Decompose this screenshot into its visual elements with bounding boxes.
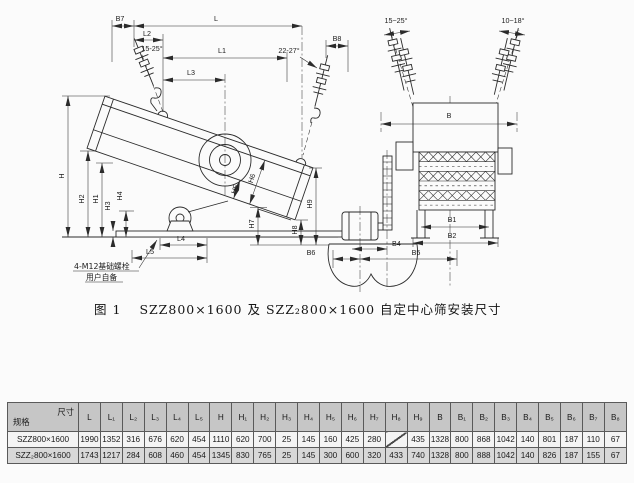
figure-caption: 图 1SZZ800×1600 及 SZZ₂800×1600 自定中心筛安装尺寸 [94, 299, 502, 318]
column-header: B₈ [604, 403, 626, 432]
spec-value: 620 [232, 432, 254, 448]
spec-value: 801 [539, 432, 561, 448]
foundation-note-line2: 用户自备 [86, 272, 117, 282]
spec-value: 700 [254, 432, 276, 448]
column-header: B₇ [582, 403, 604, 432]
spec-value: 454 [188, 448, 210, 464]
figure-caption-text: SZZ800×1600 及 SZZ₂800×1600 自定中心筛安装尺寸 [139, 302, 501, 317]
column-header: H₈ [385, 403, 407, 432]
spec-value: 1352 [100, 432, 122, 448]
column-header: B₄ [517, 403, 539, 432]
angle-label-discharge: 22-27° [278, 46, 299, 55]
motor-base [328, 244, 417, 286]
spec-value: 800 [451, 432, 473, 448]
spec-value: 1743 [79, 448, 101, 464]
spec-value: 765 [254, 448, 276, 464]
spec-value: 620 [166, 432, 188, 448]
angle-label-front-right: 10~18° [501, 16, 524, 25]
page: B7 L L2 15-25° L1 22-27° L3 B8 H H2 H1 H… [0, 0, 634, 483]
dim-label-H8: H8 [290, 225, 299, 234]
spec-value: 676 [144, 432, 166, 448]
dimension-table: 尺寸 规格 LL₁L₂L₃L₄L₅HH₁H₂H₃H₄H₅H₆H₇H₈H₉BB₁B… [7, 402, 627, 464]
spec-value [385, 432, 407, 448]
spec-value: 140 [517, 448, 539, 464]
dim-label-B: B [447, 111, 452, 120]
spec-row: SZZ800×160019901352316676620454111062070… [8, 432, 627, 448]
corner-label-dimension: 尺寸 [57, 406, 74, 418]
spec-value: 300 [319, 448, 341, 464]
spec-value: 280 [363, 432, 385, 448]
dim-label-L5: L5 [146, 247, 154, 256]
spec-value: 454 [188, 432, 210, 448]
dim-label-L2: L2 [143, 29, 151, 38]
spec-value: 826 [539, 448, 561, 464]
figure-number: 图 1 [94, 302, 121, 317]
spec-value: 67 [604, 432, 626, 448]
column-header: B₃ [495, 403, 517, 432]
dim-label-H2: H2 [77, 194, 86, 203]
column-header: L₃ [144, 403, 166, 432]
spec-value: 320 [363, 448, 385, 464]
row-model-label: SZZ800×1600 [8, 432, 79, 448]
table-body: SZZ800×160019901352316676620454111062070… [8, 432, 627, 464]
spec-value: 67 [604, 448, 626, 464]
spec-value: 1110 [210, 432, 232, 448]
spec-value: 1042 [495, 432, 517, 448]
dim-label-B2: B2 [448, 231, 457, 240]
angle-label-feed: 15-25° [141, 44, 162, 53]
dim-label-L3: L3 [187, 68, 195, 77]
dim-label-H9: H9 [305, 199, 314, 208]
spec-value: 140 [517, 432, 539, 448]
column-header: H₅ [319, 403, 341, 432]
screen-mesh [419, 152, 495, 210]
spec-value: 145 [298, 432, 320, 448]
dim-label-L4: L4 [177, 234, 185, 243]
spec-value: 608 [144, 448, 166, 464]
spec-value: 145 [298, 448, 320, 464]
dim-label-B1: B1 [448, 215, 457, 224]
column-header: B₆ [560, 403, 582, 432]
row-model-label: SZZ₂800×1600 [8, 448, 79, 464]
s-hook [311, 108, 320, 123]
spec-value: 187 [560, 448, 582, 464]
spec-value: 600 [341, 448, 363, 464]
column-header: H₄ [298, 403, 320, 432]
column-header: H₇ [363, 403, 385, 432]
column-header: H₁ [232, 403, 254, 432]
spec-value: 25 [276, 432, 298, 448]
column-header: L [79, 403, 101, 432]
corner-label-spec: 规格 [13, 416, 30, 428]
spec-value: 284 [122, 448, 144, 464]
spec-value: 435 [407, 432, 429, 448]
spec-value: 1345 [210, 448, 232, 464]
dim-label-B8: B8 [333, 34, 342, 43]
column-header: L₄ [166, 403, 188, 432]
front-view: 15~25° 10~18° [307, 16, 526, 292]
base-plate [116, 231, 352, 237]
spec-value: 110 [582, 432, 604, 448]
table-header-row: 尺寸 规格 LL₁L₂L₃L₄L₅HH₁H₂H₃H₄H₅H₆H₇H₈H₉BB₁B… [8, 403, 627, 432]
spec-value: 740 [407, 448, 429, 464]
spec-value: 425 [341, 432, 363, 448]
column-header: H₉ [407, 403, 429, 432]
pulley-bracket [396, 142, 413, 170]
spec-value: 830 [232, 448, 254, 464]
column-header: L₂ [122, 403, 144, 432]
hanger-bolt-discharge [308, 54, 334, 109]
motor-front [342, 212, 383, 240]
dim-label-B5: B5 [412, 248, 421, 257]
spec-value: 1217 [100, 448, 122, 464]
column-header: B₁ [451, 403, 473, 432]
spec-row: SZZ₂800×16001743121728460846045413458307… [8, 448, 627, 464]
spec-value: 800 [451, 448, 473, 464]
spec-value: 316 [122, 432, 144, 448]
dim-label-L1: L1 [218, 46, 226, 55]
spec-value: 433 [385, 448, 407, 464]
spec-value: 160 [319, 432, 341, 448]
column-header: B₂ [473, 403, 495, 432]
spec-value: 1328 [429, 432, 451, 448]
column-header: H₂ [254, 403, 276, 432]
column-header: L₁ [100, 403, 122, 432]
spec-value: 888 [473, 448, 495, 464]
dim-label-L: L [214, 14, 218, 23]
motor-side [167, 207, 193, 231]
dim-label-B6: B6 [307, 248, 316, 257]
hanger-bolt-front-right2 [487, 37, 514, 97]
angle-label-front-left: 15~25° [384, 16, 407, 25]
column-header: H [210, 403, 232, 432]
engineering-drawing: B7 L L2 15-25° L1 22-27° L3 B8 H H2 H1 H… [0, 0, 634, 292]
spec-value: 155 [582, 448, 604, 464]
dim-label-H4: H4 [115, 191, 124, 200]
side-view: B7 L L2 15-25° L1 22-27° L3 B8 H H2 H1 H… [57, 14, 352, 282]
dim-label-H1: H1 [91, 194, 100, 203]
spec-value: 1328 [429, 448, 451, 464]
dim-label-B4: B4 [392, 239, 401, 248]
dim-label-H3: H3 [103, 201, 112, 210]
dim-label-H7: H7 [247, 219, 256, 228]
column-header: B₅ [539, 403, 561, 432]
s-hook [151, 88, 161, 111]
corner-cell: 尺寸 规格 [8, 403, 79, 432]
dim-label-H: H [57, 173, 66, 178]
column-header: H₃ [276, 403, 298, 432]
feed-box [413, 103, 498, 152]
spec-value: 868 [473, 432, 495, 448]
column-header: L₅ [188, 403, 210, 432]
foundation-note-line1: 4-M12基础螺栓 [74, 261, 130, 271]
dim-label-B7: B7 [116, 14, 125, 23]
note-leader [139, 240, 157, 268]
column-header: H₆ [341, 403, 363, 432]
column-header: B [429, 403, 451, 432]
spec-value: 187 [560, 432, 582, 448]
spec-value: 1990 [79, 432, 101, 448]
spec-value: 460 [166, 448, 188, 464]
spec-value: 25 [276, 448, 298, 464]
drive-belt [383, 156, 392, 230]
spec-value: 1042 [495, 448, 517, 464]
